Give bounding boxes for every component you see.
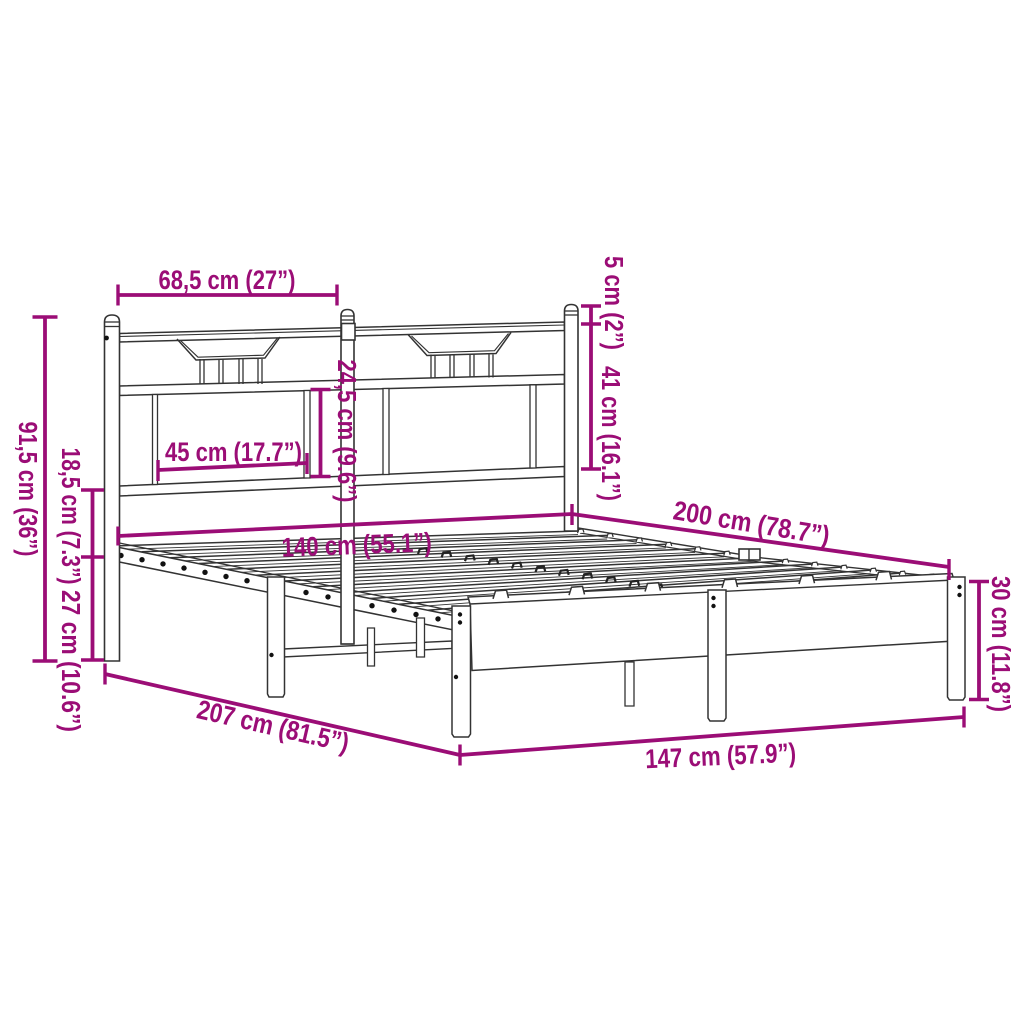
svg-text:24,5 cm (9.6”): 24,5 cm (9.6”) <box>332 360 360 503</box>
svg-text:30 cm (11.8”): 30 cm (11.8”) <box>986 576 1014 712</box>
svg-text:91,5 cm (36”): 91,5 cm (36”) <box>13 422 41 557</box>
svg-text:41 cm (16.1”): 41 cm (16.1”) <box>596 366 624 501</box>
svg-text:68,5 cm (27”): 68,5 cm (27”) <box>159 265 296 295</box>
svg-text:45 cm (17.7”): 45 cm (17.7”) <box>165 437 302 467</box>
svg-text:27 cm (10.6”): 27 cm (10.6”) <box>56 590 84 732</box>
svg-text:140 cm (55.1”): 140 cm (55.1”) <box>281 527 432 562</box>
svg-text:5 cm (2”): 5 cm (2”) <box>599 256 627 350</box>
svg-text:18,5 cm (7.3”): 18,5 cm (7.3”) <box>56 448 84 585</box>
